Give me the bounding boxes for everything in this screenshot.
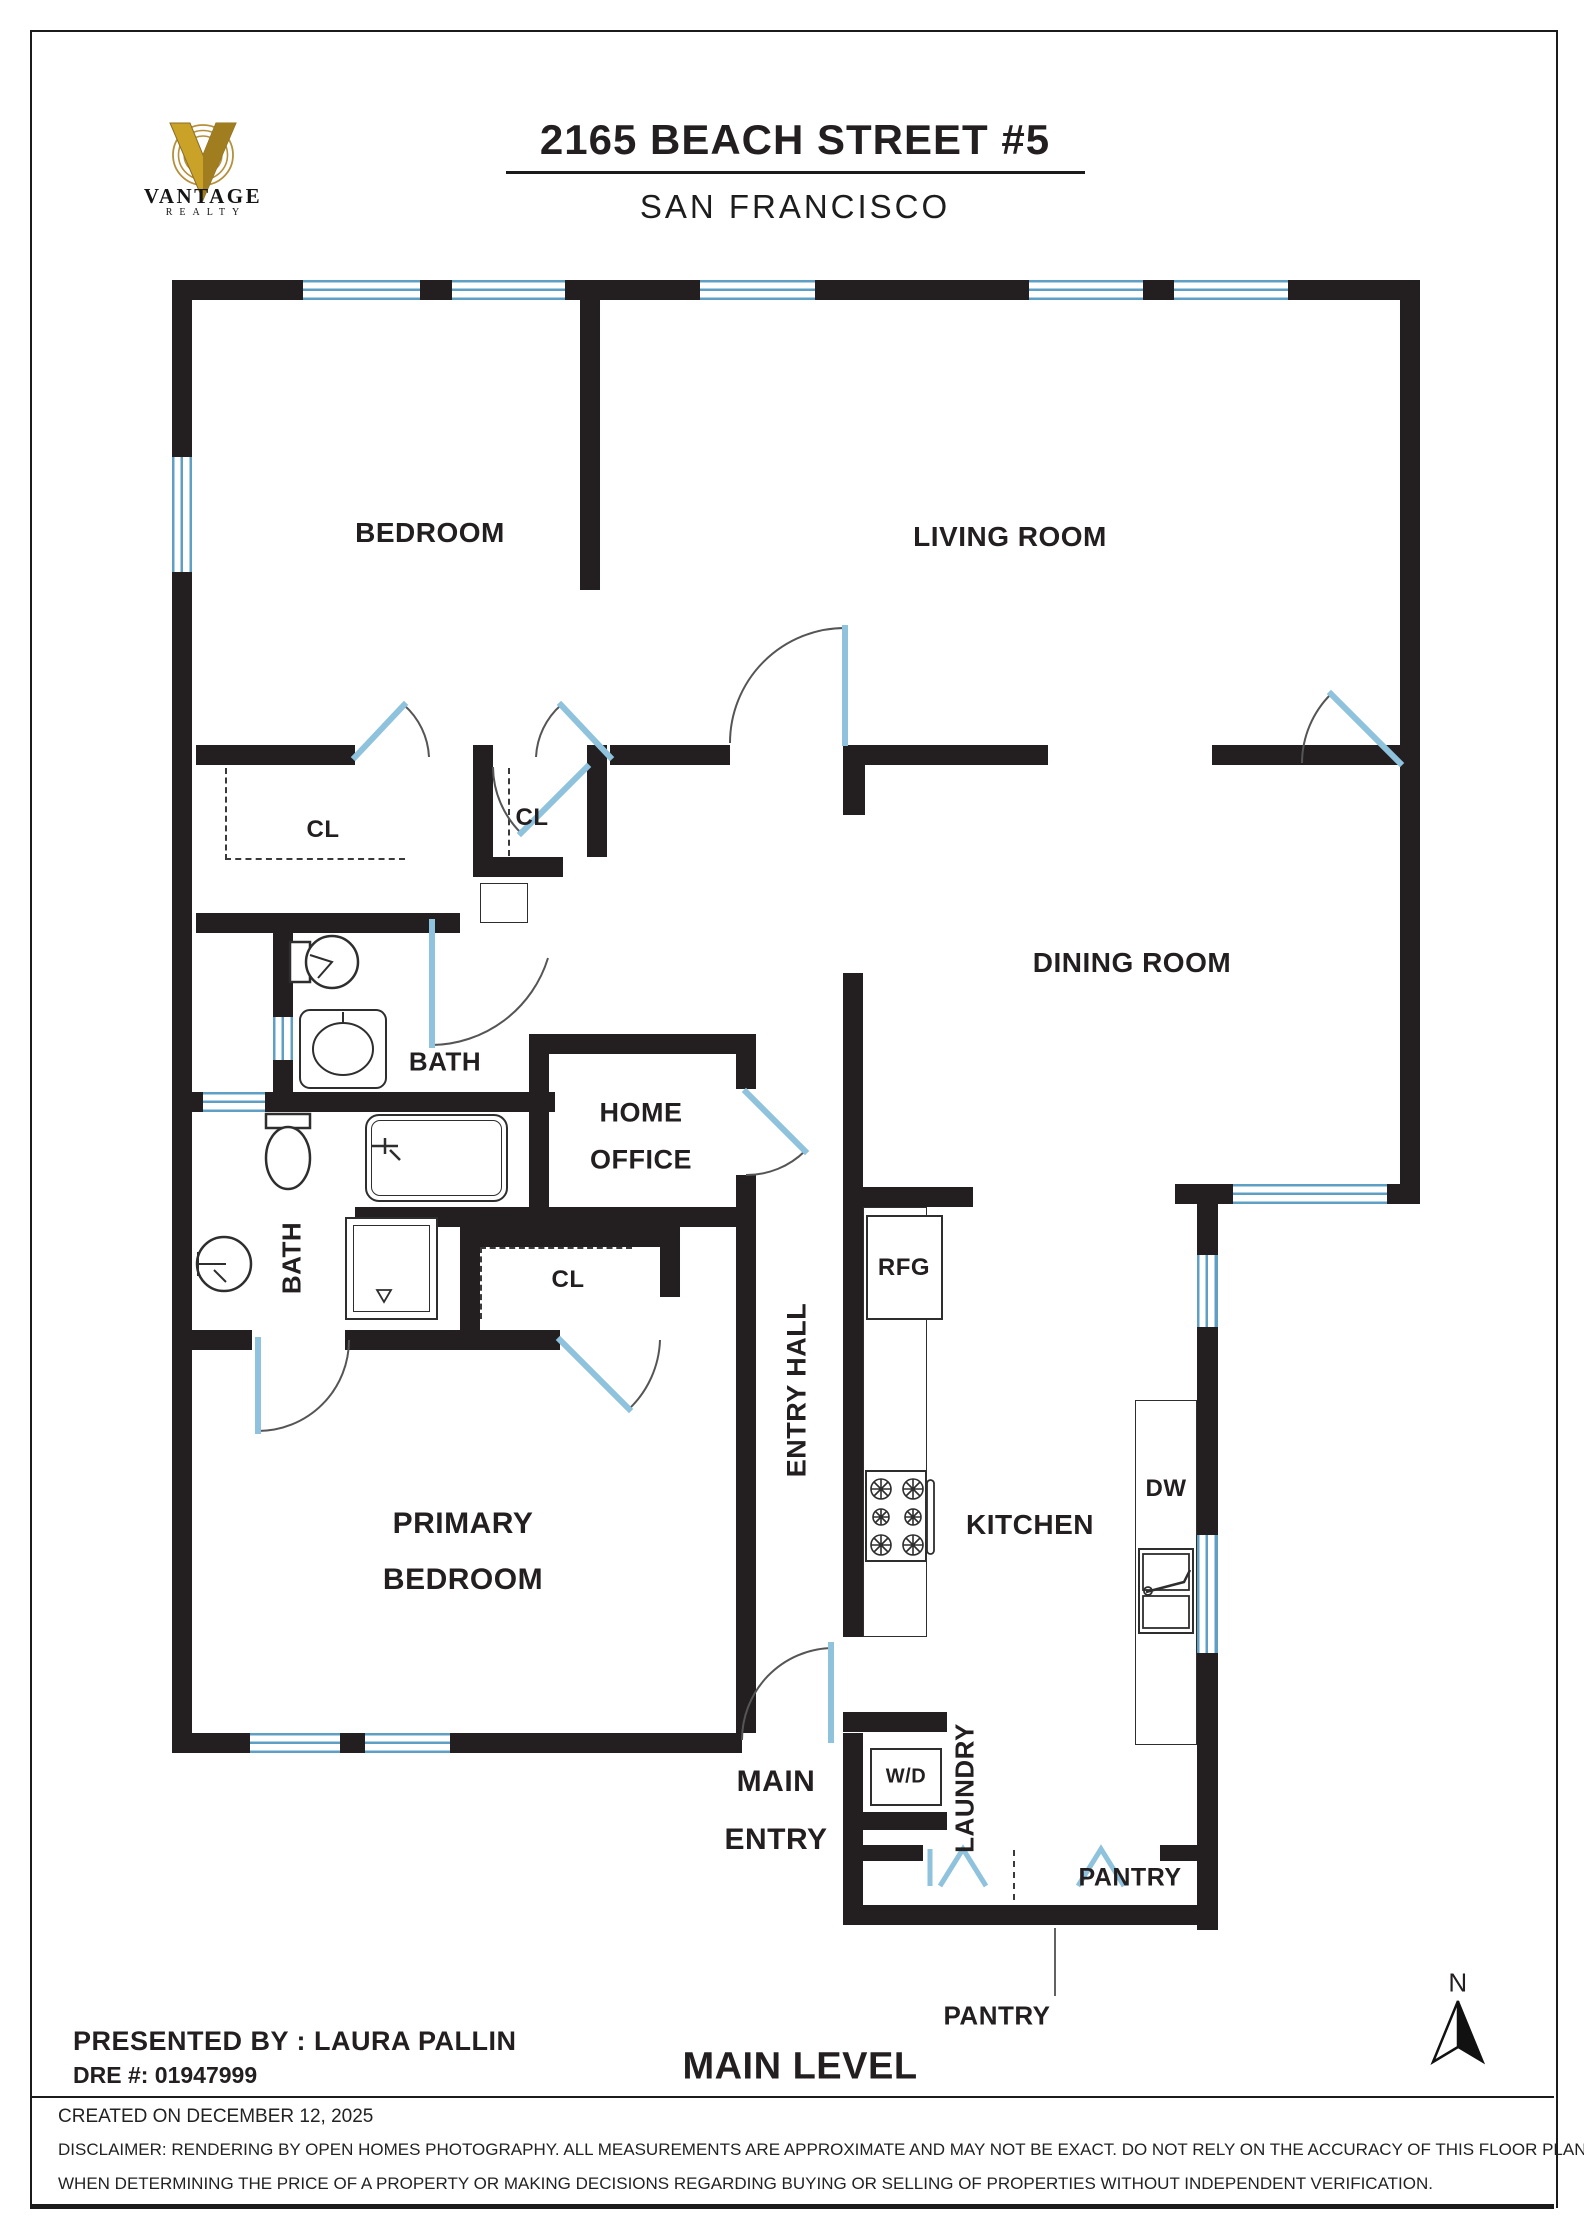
room-label-laundry: LAUNDRY: [950, 1723, 981, 1853]
label-pantry-callout: PANTRY: [944, 2001, 1051, 2032]
faucet-icon: [372, 1138, 400, 1160]
room-label-bath-upper: BATH: [409, 1047, 481, 1078]
dre-number-text: DRE #: 01947999: [73, 2062, 257, 2089]
toilet-icon: [290, 936, 358, 988]
room-label-bedroom: BEDROOM: [355, 517, 505, 549]
disclaimer-line1: DISCLAIMER: RENDERING BY OPEN HOMES PHOT…: [58, 2140, 1584, 2160]
room-label-primary-2: BEDROOM: [383, 1563, 543, 1597]
plan-linework: [0, 0, 1584, 2240]
fixture-label-rfg: RFG: [878, 1254, 930, 1282]
room-label-closet2: CL: [516, 804, 549, 832]
label-main-level: MAIN LEVEL: [682, 2046, 917, 2089]
room-label-home-office-1: HOME: [600, 1098, 683, 1129]
room-label-closet3: CL: [552, 1266, 585, 1294]
room-label-entry-hall: ENTRY HALL: [782, 1303, 813, 1478]
room-label-primary-1: PRIMARY: [393, 1507, 534, 1541]
sink-icon: [300, 1010, 386, 1088]
room-label-home-office-2: OFFICE: [590, 1145, 692, 1176]
room-label-bath-lower: BATH: [277, 1222, 308, 1294]
fixture-label-dw: DW: [1146, 1475, 1187, 1503]
shower-drain-icon: [377, 1290, 391, 1302]
label-main-entry-1: MAIN: [737, 1765, 816, 1799]
room-label-living-room: LIVING ROOM: [913, 521, 1107, 553]
toilet-icon: [266, 1114, 310, 1189]
fixture-label-wd: W/D: [886, 1766, 926, 1789]
stove-burners-icon: [871, 1479, 923, 1555]
created-on-text: CREATED ON DECEMBER 12, 2025: [58, 2106, 373, 2128]
floorplan-page: VANTAGE REALTY 2165 BEACH STREET #5 SAN …: [0, 0, 1584, 2240]
compass-north-icon: [1433, 2001, 1483, 2062]
compass-n-label: N: [1448, 1968, 1467, 1999]
label-main-entry-2: ENTRY: [724, 1823, 827, 1857]
room-label-kitchen: KITCHEN: [966, 1509, 1094, 1541]
presented-by-text: PRESENTED BY : LAURA PALLIN: [73, 2026, 517, 2057]
stove-handle-icon: [927, 1480, 934, 1554]
sink-icon: [197, 1237, 251, 1291]
room-label-pantry-inside: PANTRY: [1079, 1864, 1182, 1893]
room-label-dining-room: DINING ROOM: [1033, 947, 1231, 979]
disclaimer-line2: WHEN DETERMINING THE PRICE OF A PROPERTY…: [58, 2174, 1433, 2194]
dishwasher-sink-icon: [1143, 1554, 1190, 1628]
room-label-closet1: CL: [307, 816, 340, 844]
